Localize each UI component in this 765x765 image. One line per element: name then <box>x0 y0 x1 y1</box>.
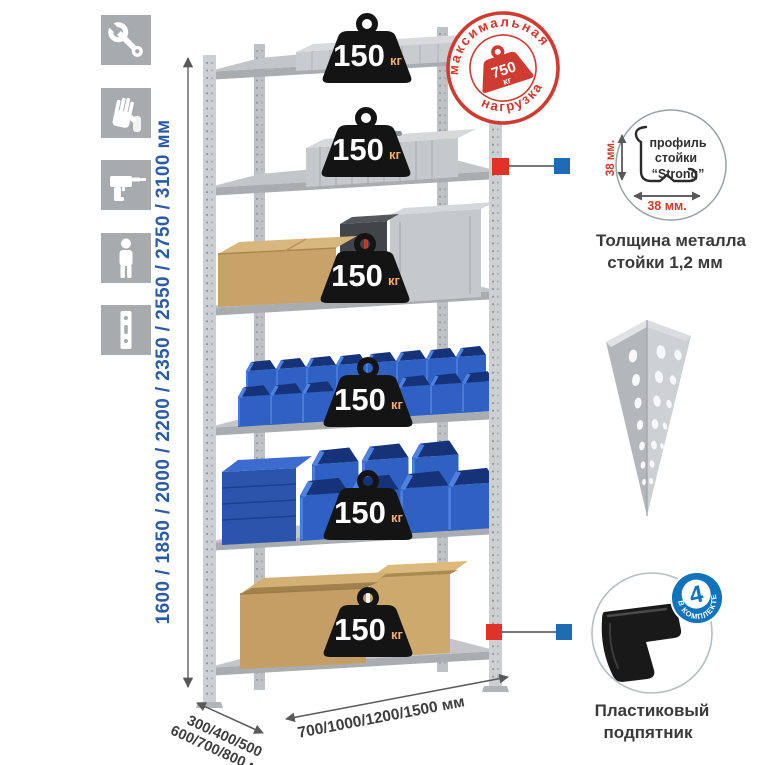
infographic-canvas: 150 кг <box>0 0 765 765</box>
rack-upright-icon <box>101 305 151 355</box>
width-dimension: 700/1000/1200/1500 мм <box>286 677 508 742</box>
profile-caption-2: стойки 1,2 мм <box>607 253 723 272</box>
marker-blue-bottom <box>556 624 572 640</box>
height-dimension: 1600 / 1850 / 2000 / 2200 / 2350 / 2550 … <box>153 58 188 687</box>
profile-label-2: стойки <box>655 151 697 165</box>
drill-icon <box>101 160 151 210</box>
height-dimension-label: 1600 / 1850 / 2000 / 2200 / 2350 / 2550 … <box>153 120 174 625</box>
foot-caption-1: Пластиковый <box>595 701 710 720</box>
depth-dimension: 300/400/500 600/700/800 мм <box>168 703 278 765</box>
shelf-load-badges <box>321 16 413 657</box>
marker-red-top <box>492 158 509 175</box>
gloves-icon <box>101 88 151 138</box>
profile-vertical-dim: 38 мм. <box>605 140 617 176</box>
wrench-icon <box>101 15 151 65</box>
profile-label-3: “Strong” <box>652 167 705 181</box>
angle-post-image <box>606 320 691 516</box>
post-profile-detail: 38 мм. 38 мм. профиль стойки “Strong” То… <box>596 110 746 272</box>
profile-caption-1: Толщина металла <box>596 231 746 250</box>
profile-horizontal-dim: 38 мм. <box>647 199 686 213</box>
foot-caption-2: подпятник <box>604 723 693 742</box>
profile-callout-connector <box>492 158 570 175</box>
icon-column <box>101 15 151 355</box>
shelving-infographic: 150 кг <box>0 0 765 765</box>
profile-label-1: профиль <box>649 136 706 150</box>
marker-blue-top <box>554 158 570 174</box>
marker-red-bottom <box>486 624 502 640</box>
plastic-foot-detail: 4 в комплекте Пластиковый подпятник <box>592 567 728 742</box>
person-icon <box>101 233 151 283</box>
max-load-stamp: максимальная нагрузка 750 кг <box>432 0 573 138</box>
foot-callout-connector <box>486 624 572 640</box>
